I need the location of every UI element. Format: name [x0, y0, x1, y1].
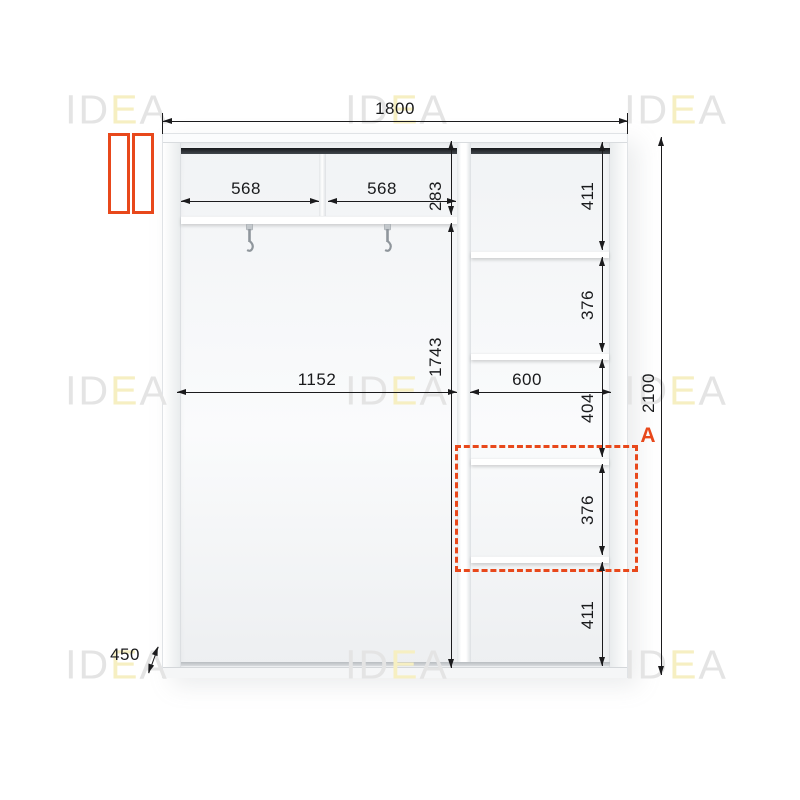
idea-watermark: IDEA [65, 87, 169, 134]
wardrobe-body [162, 133, 628, 678]
top-shelf-divider [319, 154, 326, 216]
door-panel-left [108, 133, 130, 214]
dim-line-overall-width [163, 121, 628, 122]
dim-label-shelf-column-width: 600 [512, 370, 542, 390]
coat-hook-icon [381, 224, 394, 259]
idea-watermark: IDEA [624, 642, 728, 689]
right-shelf [471, 251, 609, 258]
dim-label-hanging-width: 1152 [298, 370, 337, 390]
dim-label-hanging-height: 1743 [426, 337, 446, 377]
coat-hook-icon [243, 224, 256, 259]
dim-line-depth [148, 647, 159, 674]
center-divider [457, 143, 471, 663]
section-a-label: A [640, 424, 655, 448]
left-side-panel [163, 143, 181, 669]
dim-line-overall-height [661, 137, 662, 675]
dim-line-shelf-section-1 [602, 142, 603, 250]
idea-watermark: IDEA [624, 87, 728, 134]
dim-line-shelf-section-4 [602, 464, 603, 555]
dim-label-shelf-section-2: 376 [578, 290, 598, 320]
dim-label-shelf-section-5: 411 [578, 601, 598, 630]
dim-label-overall-height: 2100 [639, 373, 659, 413]
dim-label-shelf-section-3: 404 [578, 393, 598, 423]
wardrobe-schematic: IDEA IDEA IDEA IDEA IDEA IDEA IDEA IDEA … [0, 0, 800, 800]
door-panel-right [132, 133, 154, 214]
bottom-panel [163, 667, 627, 678]
dim-label-top-compartment-2: 568 [367, 179, 397, 199]
dim-label-overall-width: 1800 [375, 99, 415, 119]
dim-line-top-section-height [451, 141, 452, 215]
sliding-door-bottom-rail [181, 662, 610, 666]
dim-line-hanging-width [177, 392, 457, 393]
right-side-panel [609, 143, 627, 669]
idea-watermark: IDEA [65, 368, 169, 415]
top-shelf [181, 216, 458, 224]
dim-label-top-compartment-1: 568 [231, 179, 261, 199]
dim-label-shelf-section-4: 376 [578, 495, 598, 525]
section-a-highlight [455, 445, 638, 572]
dim-label-depth: 450 [110, 645, 140, 665]
right-shelf [471, 353, 609, 360]
dim-label-shelf-section-1: 411 [578, 182, 598, 211]
dim-label-top-section-height: 283 [426, 181, 446, 211]
dim-line-shelf-section-3 [602, 359, 603, 457]
sliding-door-top-track [181, 148, 610, 154]
dim-line-shelf-section-2 [602, 257, 603, 352]
dim-line-hanging-height [451, 223, 452, 668]
dim-line-shelf-section-5 [602, 562, 603, 666]
dim-line-top-compartment-1 [181, 201, 319, 202]
top-panel [163, 134, 627, 143]
sliding-doors-icon [108, 133, 154, 214]
